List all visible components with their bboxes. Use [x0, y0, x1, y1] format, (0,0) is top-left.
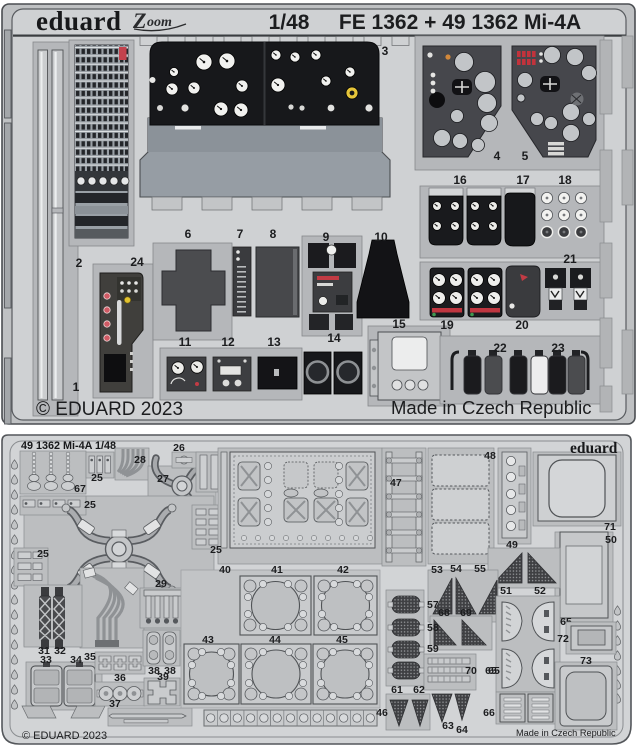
svg-text:39: 39 — [157, 671, 169, 683]
svg-text:16: 16 — [453, 173, 467, 187]
svg-text:7: 7 — [237, 227, 244, 241]
svg-text:49 1362 Mi-4A 1/48: 49 1362 Mi-4A 1/48 — [21, 440, 116, 452]
svg-text:24: 24 — [130, 255, 144, 269]
svg-text:35: 35 — [84, 651, 96, 663]
svg-text:19: 19 — [440, 318, 454, 332]
svg-text:12: 12 — [221, 335, 235, 349]
svg-text:55: 55 — [474, 563, 486, 575]
svg-text:32: 32 — [54, 645, 66, 657]
svg-text:53: 53 — [431, 564, 443, 576]
svg-text:52: 52 — [534, 585, 546, 597]
svg-text:43: 43 — [202, 634, 214, 646]
svg-text:Made in Czech Republic: Made in Czech Republic — [391, 397, 592, 418]
svg-text:58: 58 — [427, 622, 439, 634]
svg-text:62: 62 — [413, 684, 425, 696]
svg-text:20: 20 — [515, 318, 529, 332]
svg-text:47: 47 — [390, 477, 402, 489]
svg-text:15: 15 — [392, 317, 406, 331]
svg-text:70: 70 — [465, 665, 477, 677]
svg-text:oom: oom — [147, 15, 172, 30]
svg-text:8: 8 — [270, 227, 277, 241]
svg-text:72: 72 — [557, 633, 569, 645]
svg-text:5: 5 — [522, 149, 529, 163]
svg-text:10: 10 — [374, 230, 388, 244]
svg-text:© EDUARD 2023: © EDUARD 2023 — [22, 730, 107, 742]
svg-text:25: 25 — [91, 472, 103, 484]
svg-text:23: 23 — [551, 341, 565, 355]
svg-text:© EDUARD 2023: © EDUARD 2023 — [36, 399, 183, 420]
svg-text:2: 2 — [76, 256, 83, 270]
svg-text:33: 33 — [40, 654, 52, 666]
svg-text:46: 46 — [376, 707, 388, 719]
svg-text:68: 68 — [438, 607, 450, 619]
svg-text:25: 25 — [210, 544, 222, 556]
svg-text:37: 37 — [109, 698, 121, 710]
svg-text:66: 66 — [483, 707, 495, 719]
svg-text:54: 54 — [450, 563, 462, 575]
svg-text:eduard: eduard — [570, 440, 618, 457]
svg-text:1: 1 — [73, 380, 80, 394]
svg-text:17: 17 — [516, 173, 530, 187]
svg-text:45: 45 — [336, 634, 348, 646]
svg-text:eduard: eduard — [36, 6, 122, 36]
svg-text:21: 21 — [563, 252, 577, 266]
svg-text:25: 25 — [37, 548, 49, 560]
svg-text:51: 51 — [500, 585, 512, 597]
svg-text:67: 67 — [74, 483, 86, 495]
svg-text:57: 57 — [427, 599, 439, 611]
svg-text:61: 61 — [391, 684, 403, 696]
svg-text:1/48: 1/48 — [269, 11, 310, 34]
svg-text:14: 14 — [327, 331, 341, 345]
svg-text:44: 44 — [269, 634, 281, 646]
svg-text:13: 13 — [267, 335, 281, 349]
svg-text:28: 28 — [134, 454, 146, 466]
svg-text:4: 4 — [494, 149, 501, 163]
svg-text:65: 65 — [488, 665, 500, 677]
svg-text:11: 11 — [179, 335, 192, 349]
svg-text:18: 18 — [558, 173, 572, 187]
svg-text:71: 71 — [604, 521, 616, 533]
svg-text:63: 63 — [442, 720, 454, 732]
svg-text:69: 69 — [460, 607, 472, 619]
svg-text:34: 34 — [70, 654, 82, 666]
svg-text:73: 73 — [580, 655, 592, 667]
svg-text:64: 64 — [456, 724, 468, 736]
svg-text:FE 1362 + 49 1362 Mi-4A: FE 1362 + 49 1362 Mi-4A — [339, 11, 581, 34]
svg-text:27: 27 — [157, 473, 169, 485]
svg-text:9: 9 — [323, 230, 330, 244]
svg-text:3: 3 — [382, 44, 389, 58]
svg-text:50: 50 — [605, 534, 617, 546]
svg-text:40: 40 — [219, 564, 231, 576]
svg-text:41: 41 — [271, 564, 283, 576]
svg-text:Made in Czech Republic: Made in Czech Republic — [516, 728, 616, 738]
svg-text:59: 59 — [427, 643, 439, 655]
svg-text:48: 48 — [484, 450, 496, 462]
svg-text:29: 29 — [155, 578, 167, 590]
svg-text:42: 42 — [337, 564, 349, 576]
svg-text:26: 26 — [173, 442, 185, 454]
svg-text:36: 36 — [114, 672, 126, 684]
svg-text:22: 22 — [493, 341, 507, 355]
svg-text:25: 25 — [84, 499, 96, 511]
svg-text:6: 6 — [185, 227, 192, 241]
